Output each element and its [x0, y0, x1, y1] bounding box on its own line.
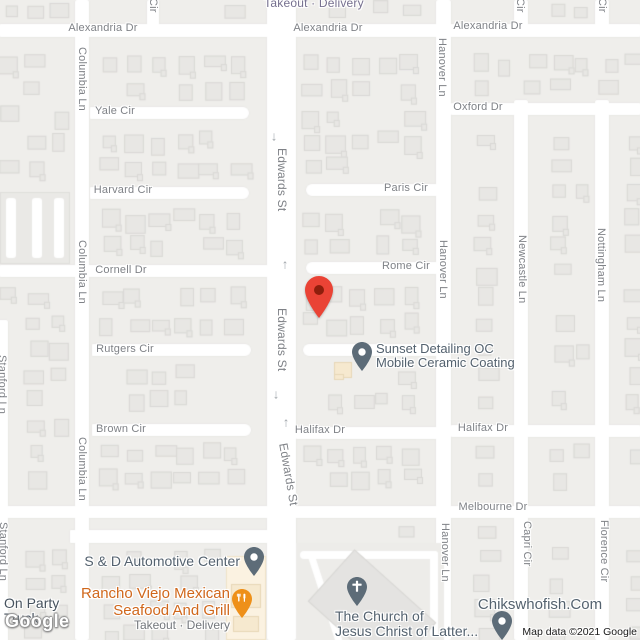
- street-label-halifax-dr: Halifax Dr: [458, 422, 508, 434]
- street-label-columbia-ln: Columbia Ln: [76, 47, 88, 111]
- street-label-cir: Cir: [596, 0, 608, 13]
- map-viewport[interactable]: Takeout · DeliveryAlexandria DrAlexandri…: [0, 0, 640, 640]
- street-label-rome-cir: Rome Cir: [382, 260, 430, 272]
- poi-label-sunset-detailing[interactable]: Sunset Detailing OCMobile Ceramic Coatin…: [376, 342, 515, 371]
- street-label-cir: Cir: [147, 0, 159, 13]
- street-label-newcastle-ln: Newcastle Ln: [516, 235, 528, 303]
- poi-sublabel: Takeout · Delivery: [81, 619, 230, 632]
- street-label-cir: Cir: [514, 0, 526, 13]
- map-attribution: Map data ©2021 Google: [522, 626, 637, 638]
- location-pin-icon[interactable]: [352, 342, 372, 371]
- street-label-nottingham-ln: Nottingham Ln: [595, 228, 607, 302]
- street-label-yale-cir: Yale Cir: [95, 105, 135, 117]
- street-label-oxford-dr: Oxford Dr: [453, 101, 502, 113]
- street-label-alexandria-dr: Alexandria Dr: [453, 20, 522, 32]
- street-label-halifax-dr: Halifax Dr: [295, 424, 345, 436]
- restaurant-pin-icon[interactable]: [232, 589, 252, 618]
- one-way-arrow-up-icon: ↑: [282, 257, 289, 272]
- poi-label-line: Rancho Viejo Mexican: [81, 586, 230, 603]
- one-way-arrow-down-icon: ↓: [273, 387, 280, 402]
- street-label-hanover-ln: Hanover Ln: [437, 240, 449, 299]
- street-label-harvard-cir: Harvard Cir: [94, 184, 152, 196]
- street-label-edwards-st: Edwards St: [275, 308, 289, 371]
- street-label-melbourne-dr: Melbourne Dr: [458, 501, 527, 513]
- poi-label-line: Mobile Ceramic Coating: [376, 356, 515, 370]
- street-label-alexandria-dr: Alexandria Dr: [68, 22, 137, 34]
- location-pin-icon[interactable]: [244, 547, 264, 576]
- poi-label-line: S & D Automotive Center: [84, 554, 240, 569]
- street-label-stanford-ln: Stanford Ln: [0, 355, 8, 414]
- poi-label-s-and-d-automotive[interactable]: S & D Automotive Center: [84, 554, 240, 569]
- street-label-columbia-ln: Columbia Ln: [76, 437, 88, 501]
- street-label-cornell-dr: Cornell Dr: [95, 264, 147, 276]
- poi-label-line: Jesus Christ of Latter...: [335, 624, 478, 639]
- poi-label-rancho-viejo-mexican[interactable]: Rancho Viejo MexicanSeafood And GrillTak…: [81, 586, 230, 632]
- street-label-columbia-ln: Columbia Ln: [76, 240, 88, 304]
- street-label-brown-cir: Brown Cir: [96, 423, 146, 435]
- street-label-stanford-ln: Stanford Ln: [0, 522, 9, 581]
- poi-label-church-of-jesus-christ[interactable]: The Church ofJesus Christ of Latter...: [335, 609, 478, 640]
- street-label-edwards-st: Edwards St: [275, 148, 289, 211]
- one-way-arrow-up-icon: ↑: [283, 415, 290, 430]
- destination-pin-icon[interactable]: [305, 276, 333, 318]
- street-label-alexandria-dr: Alexandria Dr: [293, 22, 362, 34]
- map-canvas[interactable]: [0, 0, 640, 640]
- street-label-takeout-delivery: Takeout · Delivery: [264, 0, 364, 10]
- street-label-florence-cir: Florence Cir: [598, 520, 610, 582]
- one-way-arrow-down-icon: ↓: [271, 129, 278, 144]
- street-label-hanover-ln: Hanover Ln: [439, 523, 451, 582]
- poi-label-chikswhofish[interactable]: Chikswhofish.Com: [478, 597, 602, 614]
- street-label-paris-cir: Paris Cir: [384, 182, 428, 194]
- street-label-hanover-ln: Hanover Ln: [436, 38, 448, 97]
- poi-label-line: Chikswhofish.Com: [478, 597, 602, 614]
- poi-label-line: Seafood And Grill: [81, 603, 230, 620]
- google-logo[interactable]: Google: [5, 611, 69, 632]
- street-label-rutgers-cir: Rutgers Cir: [96, 343, 154, 355]
- church-pin-icon[interactable]: [347, 577, 367, 606]
- street-label-capri-cir: Capri Cir: [521, 521, 533, 566]
- location-pin-icon[interactable]: [492, 611, 512, 640]
